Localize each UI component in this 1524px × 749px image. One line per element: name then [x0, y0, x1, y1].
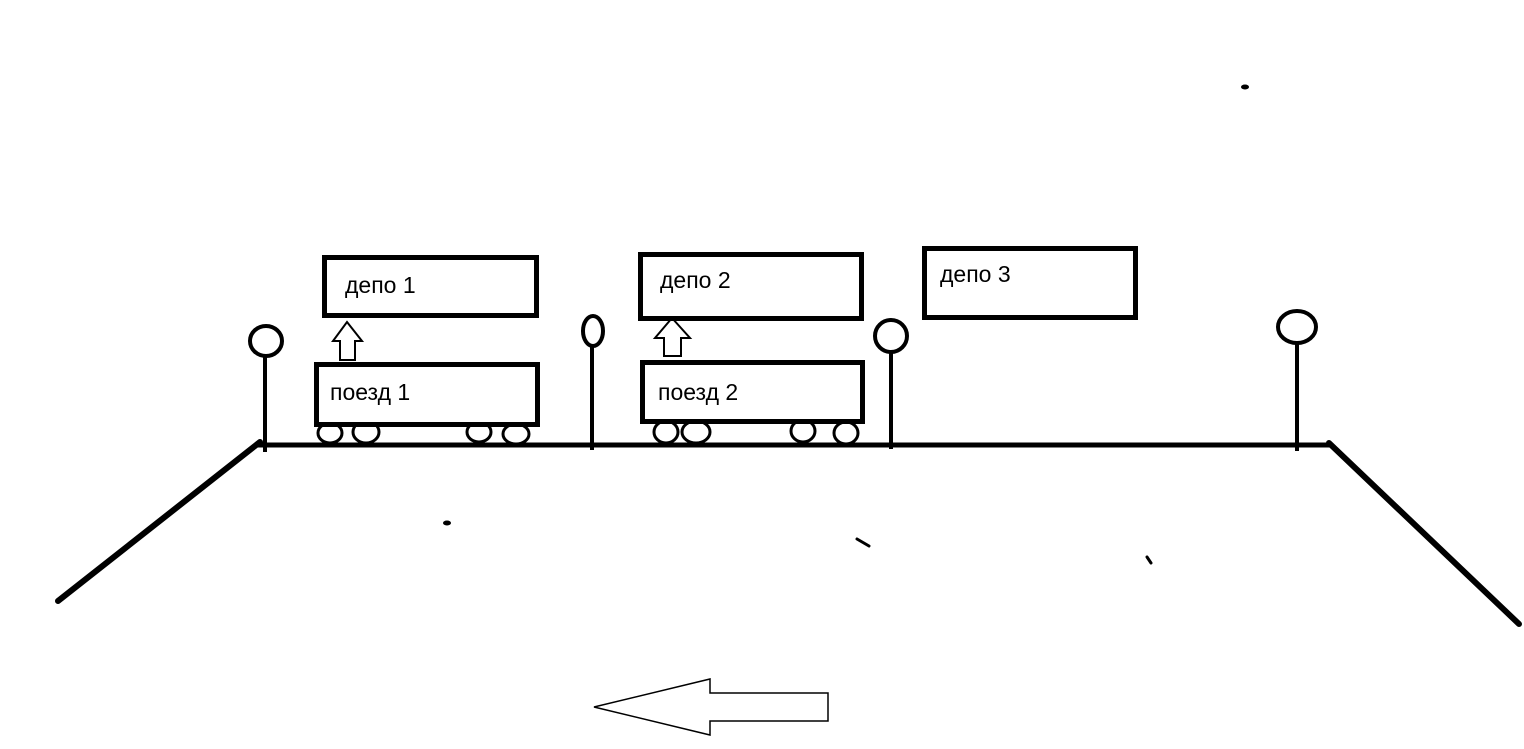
depot-1-box: депо 1: [322, 255, 539, 318]
embankment-left-slope: [58, 442, 260, 601]
embankment-right-slope: [1329, 443, 1519, 624]
up-arrow-2-icon: [655, 318, 690, 356]
signal-1-head-icon: [250, 326, 282, 356]
depot-2-box: депо 2: [638, 252, 864, 321]
ink-speck: [1241, 85, 1249, 90]
train-1-box: поезд 1: [314, 362, 540, 427]
drawing-canvas: депо 1 депо 2 депо 3 поезд 1 поезд 2: [0, 0, 1524, 749]
depot-3-label: депо 3: [940, 262, 1133, 287]
ink-speck: [857, 539, 869, 546]
train-2-label: поезд 2: [658, 380, 860, 405]
signal-4-head-icon: [1278, 311, 1316, 343]
ink-speck: [443, 521, 451, 526]
depot-3-box: депо 3: [922, 246, 1138, 320]
up-arrow-1-icon: [333, 322, 362, 360]
train-1-label: поезд 1: [330, 380, 535, 405]
signal-2-head-icon: [583, 316, 603, 346]
direction-arrow-left-icon: [594, 679, 828, 735]
depot-2-label: депо 2: [660, 268, 859, 293]
wheel-icon: [682, 421, 710, 443]
depot-1-label: депо 1: [345, 273, 534, 298]
wheel-icon: [834, 422, 858, 444]
wheel-icon: [503, 424, 529, 444]
ink-speck: [1147, 557, 1151, 563]
train-2-box: поезд 2: [640, 360, 865, 424]
signal-3-head-icon: [875, 320, 907, 352]
wheel-icon: [654, 421, 678, 443]
